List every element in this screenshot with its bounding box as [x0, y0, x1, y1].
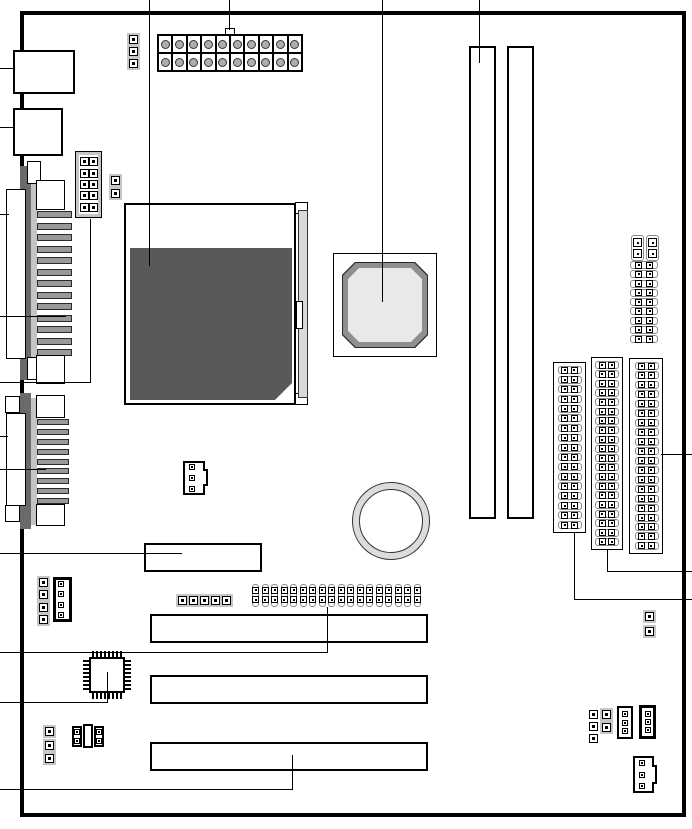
pin [37, 459, 69, 465]
pin [635, 523, 659, 531]
pin [319, 584, 326, 607]
pin [635, 495, 659, 503]
pin [589, 734, 598, 743]
pin [120, 693, 122, 699]
leader-serial-pins [0, 469, 46, 470]
leader-usb-header-h [0, 382, 91, 383]
connector-3pin-a [617, 706, 633, 739]
header-2pin-top-left [110, 176, 120, 198]
pin [92, 693, 94, 699]
isa-slot [150, 742, 428, 771]
pin [395, 584, 402, 607]
pin [216, 35, 230, 53]
pin [39, 578, 48, 587]
pin [595, 361, 619, 369]
pin [45, 727, 54, 736]
pin [37, 326, 72, 333]
pin [558, 492, 582, 500]
pin [125, 676, 131, 678]
pin [558, 434, 582, 442]
pin [558, 482, 582, 490]
pin [259, 53, 273, 71]
fan-header-center-pins [187, 464, 196, 492]
pin [201, 53, 215, 71]
pin [37, 234, 72, 241]
pin [645, 612, 654, 621]
pin [635, 438, 659, 446]
jumper-1x2-bottom-right [601, 710, 612, 732]
pin [595, 389, 619, 397]
pin [37, 292, 72, 299]
leader-floppy-v [574, 532, 575, 600]
pin [558, 405, 582, 413]
ps2-port-upper [13, 50, 75, 94]
pin [129, 47, 138, 56]
pin [635, 428, 659, 436]
pin [189, 464, 195, 470]
pin [558, 376, 582, 384]
pin [96, 738, 102, 744]
pin [37, 246, 72, 253]
jumper-block-2x3-cap [83, 724, 93, 748]
pin [89, 157, 98, 166]
pci-slot-2 [150, 675, 428, 704]
pin [37, 257, 72, 264]
front-panel-header [252, 583, 421, 607]
serial-port-ear-top [5, 396, 20, 413]
pin [111, 189, 120, 198]
pin [595, 398, 619, 406]
aux-connector-slot [144, 543, 262, 572]
pin [595, 510, 619, 518]
pin [112, 693, 114, 699]
freq-jumper-vertical-cap-1 [631, 235, 644, 261]
pin [37, 419, 69, 425]
pin [635, 381, 659, 389]
ide-connector-right-pins [634, 362, 659, 550]
pin [558, 473, 582, 481]
pin [595, 463, 619, 471]
pin [262, 584, 269, 607]
pin [58, 591, 64, 597]
pin [125, 684, 131, 686]
jumper-2pin-right [644, 612, 655, 636]
pin [595, 436, 619, 444]
pin [273, 35, 287, 53]
leader-parallel-pins [0, 316, 66, 317]
pin [376, 584, 383, 607]
pin [595, 501, 619, 509]
pin [328, 584, 335, 607]
leader-io-chip-v [107, 672, 108, 703]
pin [622, 720, 628, 726]
chipset-face [348, 268, 422, 342]
pin [595, 482, 619, 490]
leader-parallel-port [0, 214, 9, 215]
pin [74, 738, 80, 744]
pin [635, 419, 659, 427]
leader-isa-slot-v [292, 755, 293, 790]
pin [172, 35, 186, 53]
pin [230, 53, 244, 71]
pin [290, 584, 297, 607]
pin [338, 584, 345, 607]
motherboard-diagram [0, 0, 692, 829]
jumper-row-center [178, 594, 231, 606]
pin [96, 693, 98, 699]
pin [589, 722, 598, 731]
audio-connector-pins [57, 581, 65, 618]
pin [37, 478, 69, 484]
pin [347, 584, 354, 607]
pin [45, 754, 54, 763]
serial-port-body [6, 413, 26, 506]
io-chip-pins-right [125, 660, 131, 690]
pin [104, 693, 106, 699]
pin [45, 741, 54, 750]
pin [630, 289, 658, 297]
pin [635, 447, 659, 455]
pin [630, 326, 658, 334]
pin [558, 366, 582, 374]
pin [125, 680, 131, 682]
connector-3pin-b [639, 705, 656, 739]
pin [602, 723, 611, 732]
leader-ps2-upper [0, 68, 14, 69]
pin [645, 727, 651, 733]
leader-front-panel-h [0, 652, 328, 653]
parallel-port-cap-top [36, 180, 65, 210]
pin [100, 693, 102, 699]
pin [357, 584, 364, 607]
pin [635, 362, 659, 370]
pin [37, 488, 69, 494]
ide-connector-middle-pins [595, 361, 619, 546]
leader-dimm-slots [479, 0, 480, 63]
pin [558, 511, 582, 519]
pin [125, 668, 131, 670]
atx-power-connector [157, 34, 303, 72]
pin [80, 180, 89, 189]
pin [288, 53, 302, 71]
leader-cpu-socket [149, 0, 150, 266]
pin [635, 532, 659, 540]
pin [630, 270, 658, 278]
pin [116, 693, 118, 699]
pin [189, 486, 195, 492]
pin [252, 584, 259, 607]
pin [39, 615, 48, 624]
pin [187, 53, 201, 71]
parallel-port-cap-bottom [36, 355, 65, 384]
leader-floppy-h [574, 599, 692, 600]
pin [80, 191, 89, 200]
pin [595, 538, 619, 546]
leader-aux-slot [0, 553, 182, 554]
pin [259, 35, 273, 53]
pin [89, 191, 98, 200]
pin [595, 491, 619, 499]
battery-core [359, 489, 423, 553]
pin [595, 408, 619, 416]
pin [230, 35, 244, 53]
header-3pin-top [128, 35, 138, 68]
pin [80, 157, 89, 166]
pin [108, 693, 110, 699]
pin [89, 203, 98, 212]
pin [635, 400, 659, 408]
pin [37, 303, 72, 310]
pin [635, 476, 659, 484]
serial-port-pins [37, 419, 69, 504]
pin [366, 584, 373, 607]
fan-header-center-bracket [203, 469, 208, 486]
dimm-slot-1 [469, 46, 496, 519]
cpu-socket-die [130, 248, 292, 400]
pin [89, 169, 98, 178]
pin [635, 485, 659, 493]
pin [187, 35, 201, 53]
pin [37, 223, 72, 230]
pin [222, 596, 231, 605]
pin [201, 35, 215, 53]
leader-atx-power [229, 0, 230, 30]
pin [639, 772, 645, 778]
pin [37, 269, 72, 276]
pin [558, 395, 582, 403]
pin [602, 710, 611, 719]
pin [158, 53, 172, 71]
pin [37, 338, 72, 345]
pin [281, 584, 288, 607]
pin [125, 660, 131, 662]
pin [635, 504, 659, 512]
pin [595, 426, 619, 434]
pin [244, 53, 258, 71]
header-1x3-bottom-left [44, 727, 55, 763]
pin [37, 449, 69, 455]
pin [635, 390, 659, 398]
leader-serial-port [0, 436, 8, 437]
freq-jumper-vertical-cap-2 [646, 235, 659, 261]
header-1x3-bottom-right [588, 710, 598, 743]
pin [80, 169, 89, 178]
pin [630, 317, 658, 325]
pin [558, 385, 582, 393]
pin [558, 453, 582, 461]
pin [58, 581, 64, 587]
pin [125, 672, 131, 674]
pin [595, 529, 619, 537]
pin [96, 729, 102, 735]
pin [635, 466, 659, 474]
pin [595, 473, 619, 481]
serial-port-ear-bottom [5, 505, 20, 522]
pin [558, 502, 582, 510]
leader-io-chip-h [0, 702, 108, 703]
dimm-slot-2 [507, 46, 534, 519]
pin [589, 710, 598, 719]
pin [300, 584, 307, 607]
audio-pin-header [38, 578, 49, 624]
pin [244, 35, 258, 53]
leader-usb-header-v [90, 219, 91, 383]
pin [635, 409, 659, 417]
pin [622, 711, 628, 717]
pin [622, 728, 628, 734]
pin [309, 584, 316, 607]
pin [595, 454, 619, 462]
pin [414, 584, 421, 607]
pin [558, 424, 582, 432]
fan-header-bottom-pins [637, 760, 646, 789]
pin [635, 457, 659, 465]
pin [385, 584, 392, 607]
pin [216, 53, 230, 71]
pin [271, 584, 278, 607]
pin [37, 429, 69, 435]
pin [630, 335, 658, 343]
pin [273, 53, 287, 71]
pin [129, 35, 138, 44]
pin [37, 211, 72, 218]
pin [37, 280, 72, 287]
pin [595, 370, 619, 378]
pin [89, 180, 98, 189]
leader-front-panel-v [327, 607, 328, 653]
pin [639, 760, 645, 766]
pin [200, 596, 209, 605]
pin [404, 584, 411, 607]
pin [630, 261, 658, 269]
parallel-port-body [6, 189, 26, 359]
pin [639, 783, 645, 789]
pin [635, 371, 659, 379]
pin [172, 53, 186, 71]
leader-ps2-lower [0, 127, 14, 128]
jumper-block-2x3-col1 [72, 726, 82, 747]
pin [125, 664, 131, 666]
pin [129, 59, 138, 68]
pin [189, 475, 195, 481]
freq-jumper-rows [629, 261, 659, 343]
ps2-port-lower [13, 108, 63, 156]
pin [39, 603, 48, 612]
jumper-block-2x3-col3 [94, 726, 104, 747]
pin [80, 203, 89, 212]
pin [635, 514, 659, 522]
pin [635, 542, 659, 550]
pin [558, 521, 582, 529]
serial-port-cap-bottom [36, 504, 65, 526]
pin [558, 414, 582, 422]
floppy-connector-pins [557, 366, 582, 529]
pin [58, 602, 64, 608]
pin [288, 35, 302, 53]
pin [630, 307, 658, 315]
front-usb-header [75, 151, 102, 218]
pin [558, 463, 582, 471]
pin [630, 298, 658, 306]
leader-ide-right [661, 454, 692, 455]
parallel-port-pins [37, 211, 72, 356]
pci-slot-1 [150, 614, 428, 643]
pin [645, 719, 651, 725]
leader-ide-middle-v [607, 549, 608, 572]
pin [158, 35, 172, 53]
pin [595, 445, 619, 453]
leader-chipset [382, 0, 383, 302]
pin [37, 439, 69, 445]
pin [645, 627, 654, 636]
pin [39, 590, 48, 599]
pin [111, 176, 120, 185]
pin [630, 280, 658, 288]
pin [178, 596, 187, 605]
pin [595, 417, 619, 425]
pin [125, 688, 131, 690]
leader-isa-slot-h [0, 789, 293, 790]
pin [595, 380, 619, 388]
leader-ide-middle-h [607, 571, 692, 572]
pin [189, 596, 198, 605]
cpu-retention-notch [296, 301, 303, 329]
serial-port-cap-top [36, 395, 65, 418]
pin [74, 729, 80, 735]
pin [558, 444, 582, 452]
pin [58, 612, 64, 618]
pin [211, 596, 220, 605]
pin [595, 519, 619, 527]
fan-header-bottom-bracket [652, 765, 657, 784]
pin [645, 711, 651, 717]
